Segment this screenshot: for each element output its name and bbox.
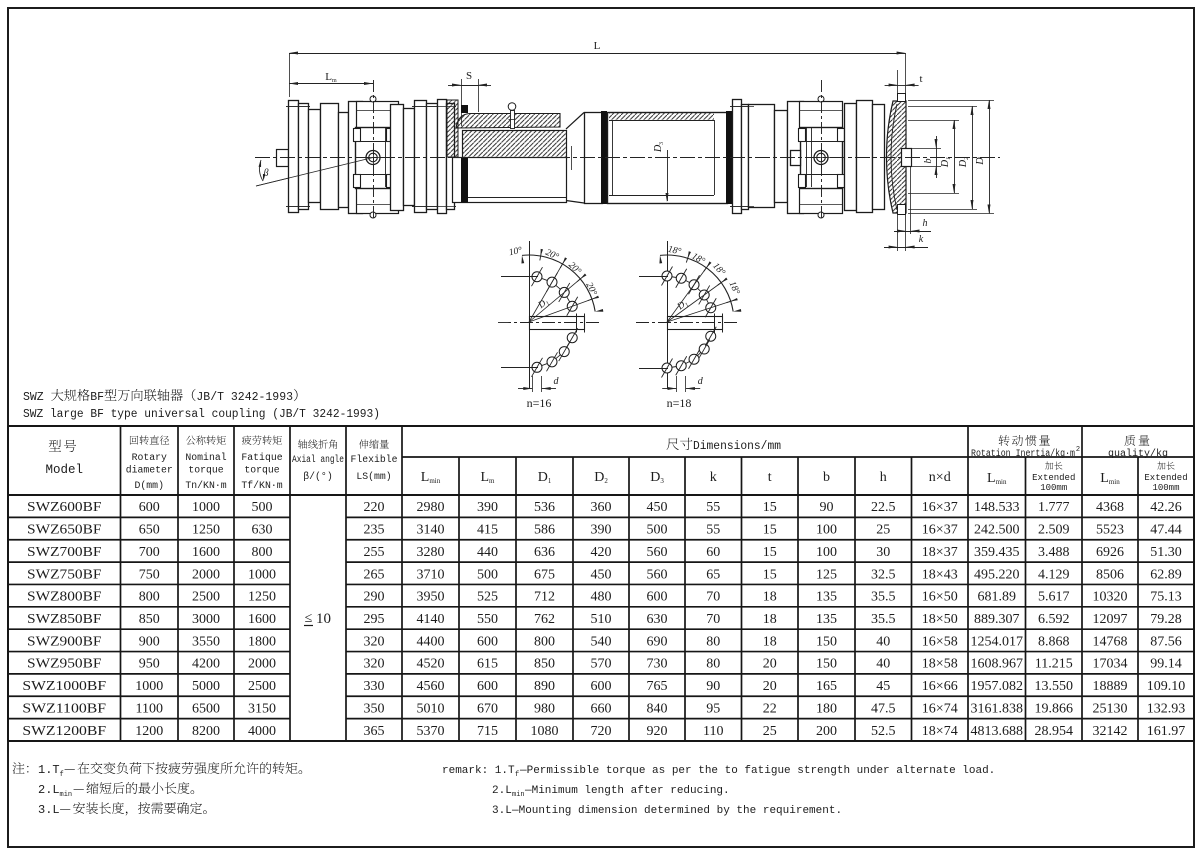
svg-text:1080: 1080 xyxy=(531,724,559,739)
svg-text:500: 500 xyxy=(252,500,273,515)
svg-text:35.5: 35.5 xyxy=(871,590,896,605)
svg-text:18×37: 18×37 xyxy=(922,545,958,560)
svg-text:5523: 5523 xyxy=(1096,523,1124,538)
svg-text:3280: 3280 xyxy=(417,545,445,560)
svg-text:600: 600 xyxy=(139,500,160,515)
svg-text:1.T: 1.T xyxy=(38,763,60,777)
svg-text:320: 320 xyxy=(364,634,385,649)
svg-text:700: 700 xyxy=(139,545,160,560)
svg-text:500: 500 xyxy=(477,567,498,582)
svg-text:47.5: 47.5 xyxy=(871,701,896,716)
svg-text:1.777: 1.777 xyxy=(1038,500,1070,515)
svg-text:100mm: 100mm xyxy=(1152,483,1179,493)
svg-text:16×37: 16×37 xyxy=(922,500,958,515)
svg-text:450: 450 xyxy=(647,500,668,515)
svg-text:D: D xyxy=(975,157,986,166)
svg-text:47.44: 47.44 xyxy=(1150,523,1182,538)
svg-text:3.L: 3.L xyxy=(38,803,60,817)
svg-text:15: 15 xyxy=(763,500,777,515)
svg-text:1608.967: 1608.967 xyxy=(971,657,1024,672)
svg-text:remark: 1.T: remark: 1.T xyxy=(442,765,515,777)
svg-text:70: 70 xyxy=(706,612,720,627)
svg-text:90: 90 xyxy=(706,679,720,694)
svg-text:715: 715 xyxy=(477,724,498,739)
svg-text:480: 480 xyxy=(591,590,612,605)
svg-text:25130: 25130 xyxy=(1093,701,1128,716)
svg-text:525: 525 xyxy=(477,590,498,605)
svg-text:180: 180 xyxy=(816,701,837,716)
svg-text:290: 290 xyxy=(364,590,385,605)
svg-text:600: 600 xyxy=(477,679,498,694)
svg-text:161.97: 161.97 xyxy=(1147,724,1186,739)
svg-text:360: 360 xyxy=(591,500,612,515)
svg-text:min: min xyxy=(512,791,525,799)
svg-text:SWZ1100BF: SWZ1100BF xyxy=(22,701,106,716)
svg-text:600: 600 xyxy=(477,634,498,649)
svg-text:Model: Model xyxy=(45,463,83,477)
svg-text:BF: BF xyxy=(90,391,104,404)
svg-text:b: b xyxy=(923,159,934,164)
svg-text:295: 295 xyxy=(364,612,385,627)
svg-text:800: 800 xyxy=(252,545,273,560)
svg-text:4200: 4200 xyxy=(192,657,220,672)
svg-text:6500: 6500 xyxy=(192,701,220,716)
svg-text:SWZ1000BF: SWZ1000BF xyxy=(22,679,106,694)
svg-text:3: 3 xyxy=(659,142,665,145)
svg-text:800: 800 xyxy=(139,590,160,605)
svg-text:150: 150 xyxy=(816,634,837,649)
svg-text:17034: 17034 xyxy=(1093,657,1128,672)
svg-text:Extended: Extended xyxy=(1144,473,1187,483)
svg-text:18×50: 18×50 xyxy=(922,612,958,627)
svg-text:Dimensions/mm: Dimensions/mm xyxy=(693,439,781,453)
svg-text:n=16: n=16 xyxy=(527,396,552,410)
svg-text:148.533: 148.533 xyxy=(974,500,1020,515)
svg-text:3.L: 3.L xyxy=(492,805,512,817)
svg-text:torque: torque xyxy=(188,465,223,476)
svg-text:660: 660 xyxy=(591,701,612,716)
svg-text:242.500: 242.500 xyxy=(974,523,1020,538)
svg-text:25: 25 xyxy=(876,523,890,538)
svg-text:Flexible: Flexible xyxy=(350,454,397,465)
svg-text:3150: 3150 xyxy=(248,701,276,716)
svg-text:681.89: 681.89 xyxy=(978,590,1017,605)
svg-text:8506: 8506 xyxy=(1096,567,1124,582)
svg-text:62.89: 62.89 xyxy=(1150,567,1182,582)
svg-text:2.509: 2.509 xyxy=(1038,523,1070,538)
svg-text:950: 950 xyxy=(139,657,160,672)
svg-text:n=18: n=18 xyxy=(667,396,692,410)
svg-text:95: 95 xyxy=(706,701,720,716)
svg-text:100mm: 100mm xyxy=(1040,483,1067,493)
svg-text:87.56: 87.56 xyxy=(1150,634,1182,649)
svg-text:615: 615 xyxy=(477,657,498,672)
svg-text:80: 80 xyxy=(706,634,720,649)
svg-text:1250: 1250 xyxy=(248,590,276,605)
svg-text:765: 765 xyxy=(647,679,668,694)
svg-text:630: 630 xyxy=(252,523,273,538)
svg-text:4520: 4520 xyxy=(417,657,445,672)
svg-text:3950: 3950 xyxy=(417,590,445,605)
svg-text:79.28: 79.28 xyxy=(1150,612,1182,627)
svg-text:Tn/KN·m: Tn/KN·m xyxy=(185,480,226,491)
svg-text:3000: 3000 xyxy=(192,612,220,627)
svg-text:4140: 4140 xyxy=(417,612,445,627)
svg-text:390: 390 xyxy=(591,523,612,538)
svg-text:2980: 2980 xyxy=(417,500,445,515)
svg-text:135: 135 xyxy=(816,590,837,605)
svg-text:1000: 1000 xyxy=(192,500,220,515)
svg-text:LS(mm): LS(mm) xyxy=(356,471,391,482)
svg-text:2000: 2000 xyxy=(192,567,220,582)
svg-text:SWZ650BF: SWZ650BF xyxy=(27,523,102,538)
svg-text:1000: 1000 xyxy=(135,679,163,694)
svg-text:1250: 1250 xyxy=(192,523,220,538)
svg-text:42.26: 42.26 xyxy=(1150,500,1182,515)
svg-text:450: 450 xyxy=(591,567,612,582)
svg-text:330: 330 xyxy=(364,679,385,694)
svg-text:560: 560 xyxy=(647,567,668,582)
svg-text:1600: 1600 xyxy=(248,612,276,627)
svg-text:18×58: 18×58 xyxy=(922,657,958,672)
svg-text:536: 536 xyxy=(534,500,555,515)
svg-text:220: 220 xyxy=(364,500,385,515)
svg-text:1200: 1200 xyxy=(135,724,163,739)
svg-text:90: 90 xyxy=(820,500,834,515)
svg-text:99.14: 99.14 xyxy=(1150,657,1182,672)
svg-text:18×74: 18×74 xyxy=(922,724,958,739)
svg-text:SWZ1200BF: SWZ1200BF xyxy=(22,724,106,739)
svg-text:560: 560 xyxy=(647,545,668,560)
svg-text:110: 110 xyxy=(703,724,723,739)
svg-text:18889: 18889 xyxy=(1093,679,1128,694)
svg-text:650: 650 xyxy=(139,523,160,538)
svg-text:265: 265 xyxy=(364,567,385,582)
svg-text:8.868: 8.868 xyxy=(1038,634,1070,649)
svg-text:3550: 3550 xyxy=(192,634,220,649)
svg-text:390: 390 xyxy=(477,500,498,515)
svg-text:5.617: 5.617 xyxy=(1038,590,1070,605)
svg-text:1100: 1100 xyxy=(136,701,163,716)
svg-text:850: 850 xyxy=(534,657,555,672)
svg-text:690: 690 xyxy=(647,634,668,649)
svg-text:45: 45 xyxy=(876,679,890,694)
svg-text:920: 920 xyxy=(647,724,668,739)
svg-text:586: 586 xyxy=(534,523,555,538)
svg-text:20: 20 xyxy=(763,657,777,672)
svg-text:4400: 4400 xyxy=(417,634,445,649)
svg-text:5370: 5370 xyxy=(417,724,445,739)
svg-text:75.13: 75.13 xyxy=(1150,590,1182,605)
svg-text:Nominal: Nominal xyxy=(185,452,226,463)
svg-text:12097: 12097 xyxy=(1093,612,1128,627)
svg-text:SWZ700BF: SWZ700BF xyxy=(27,545,102,560)
svg-text:S: S xyxy=(466,70,472,82)
svg-text:Axial angle: Axial angle xyxy=(292,454,344,465)
svg-text:16×58: 16×58 xyxy=(922,634,958,649)
svg-text:n×d: n×d xyxy=(929,470,951,485)
svg-text:14768: 14768 xyxy=(1093,634,1128,649)
svg-text:55: 55 xyxy=(706,523,720,538)
svg-text:2.L: 2.L xyxy=(38,783,60,797)
svg-text:SWZ950BF: SWZ950BF xyxy=(27,657,102,672)
svg-text:55: 55 xyxy=(706,500,720,515)
svg-text:2: 2 xyxy=(1076,446,1080,454)
svg-text:5010: 5010 xyxy=(417,701,445,716)
svg-text:675: 675 xyxy=(534,567,555,582)
svg-text:570: 570 xyxy=(591,657,612,672)
svg-text:1957.082: 1957.082 xyxy=(971,679,1024,694)
svg-text:125: 125 xyxy=(816,567,837,582)
svg-text:850: 850 xyxy=(139,612,160,627)
svg-text:8200: 8200 xyxy=(192,724,220,739)
svg-text:510: 510 xyxy=(591,612,612,627)
svg-text:4813.688: 4813.688 xyxy=(971,724,1024,739)
svg-text:1254.017: 1254.017 xyxy=(971,634,1024,649)
svg-text:365: 365 xyxy=(364,724,385,739)
svg-text:80: 80 xyxy=(706,657,720,672)
svg-text:35.5: 35.5 xyxy=(871,612,896,627)
svg-text:19.866: 19.866 xyxy=(1035,701,1074,716)
svg-text:840: 840 xyxy=(647,701,668,716)
svg-text:600: 600 xyxy=(647,590,668,605)
svg-text:torque: torque xyxy=(244,465,279,476)
svg-text:b: b xyxy=(823,470,830,485)
svg-text:440: 440 xyxy=(477,545,498,560)
svg-text:32.5: 32.5 xyxy=(871,567,896,582)
svg-text:132.93: 132.93 xyxy=(1147,701,1186,716)
svg-text:SWZ750BF: SWZ750BF xyxy=(27,567,102,582)
svg-text:22: 22 xyxy=(763,701,777,716)
svg-text:200: 200 xyxy=(816,724,837,739)
svg-text:f: f xyxy=(60,771,64,779)
svg-text:4368: 4368 xyxy=(1096,500,1124,515)
svg-text:min: min xyxy=(60,791,73,799)
svg-text:22.5: 22.5 xyxy=(871,500,896,515)
svg-text:165: 165 xyxy=(816,679,837,694)
svg-text:SWZ900BF: SWZ900BF xyxy=(27,634,102,649)
svg-text:762: 762 xyxy=(534,612,555,627)
svg-text:Rotation Inertia/kg·m: Rotation Inertia/kg·m xyxy=(971,448,1075,460)
svg-text:60: 60 xyxy=(706,545,720,560)
svg-text:415: 415 xyxy=(477,523,498,538)
svg-text:25: 25 xyxy=(763,724,777,739)
svg-text:28.954: 28.954 xyxy=(1035,724,1074,739)
svg-text:540: 540 xyxy=(591,634,612,649)
svg-text:—Minimum length after reducing: —Minimum length after reducing. xyxy=(524,785,730,797)
svg-text:51.30: 51.30 xyxy=(1150,545,1182,560)
svg-text:3.488: 3.488 xyxy=(1038,545,1070,560)
svg-text:18: 18 xyxy=(763,590,777,605)
svg-text:6926: 6926 xyxy=(1096,545,1124,560)
svg-text:32142: 32142 xyxy=(1093,724,1128,739)
svg-text:diameter: diameter xyxy=(126,465,173,476)
svg-text:SWZ large BF type universal co: SWZ large BF type universal coupling (JB… xyxy=(23,408,380,421)
svg-text:600: 600 xyxy=(591,679,612,694)
svg-text:712: 712 xyxy=(534,590,555,605)
svg-text:13.550: 13.550 xyxy=(1035,679,1074,694)
svg-text:5000: 5000 xyxy=(192,679,220,694)
svg-text:—Mounting dimension determined: —Mounting dimension determined by the re… xyxy=(511,805,842,817)
svg-text:10320: 10320 xyxy=(1093,590,1128,605)
svg-text:1000: 1000 xyxy=(248,567,276,582)
svg-text:3140: 3140 xyxy=(417,523,445,538)
svg-text:k: k xyxy=(919,234,924,245)
svg-text:Rotary: Rotary xyxy=(132,452,167,463)
svg-text:D(mm): D(mm) xyxy=(135,480,164,491)
svg-text:890: 890 xyxy=(534,679,555,694)
svg-text:4000: 4000 xyxy=(248,724,276,739)
svg-text:h: h xyxy=(923,218,928,229)
svg-text:65: 65 xyxy=(706,567,720,582)
svg-text:f: f xyxy=(515,771,519,779)
svg-text:3710: 3710 xyxy=(417,567,445,582)
svg-text:495.220: 495.220 xyxy=(974,567,1020,582)
svg-text:18×43: 18×43 xyxy=(922,567,958,582)
svg-text:52.5: 52.5 xyxy=(871,724,896,739)
svg-text:15: 15 xyxy=(763,545,777,560)
svg-text:t: t xyxy=(768,470,772,485)
svg-text:16×50: 16×50 xyxy=(922,590,958,605)
svg-text:235: 235 xyxy=(364,523,385,538)
svg-text:SWZ600BF: SWZ600BF xyxy=(27,500,102,515)
svg-text:k: k xyxy=(710,470,717,485)
svg-text:720: 720 xyxy=(591,724,612,739)
svg-text:SWZ850BF: SWZ850BF xyxy=(27,612,102,627)
svg-text:18: 18 xyxy=(763,612,777,627)
svg-text:h: h xyxy=(880,470,887,485)
svg-text:670: 670 xyxy=(477,701,498,716)
svg-text:70: 70 xyxy=(706,590,720,605)
svg-text:100: 100 xyxy=(816,545,837,560)
svg-text:SWZ800BF: SWZ800BF xyxy=(27,590,102,605)
svg-text:150: 150 xyxy=(816,657,837,672)
svg-text:420: 420 xyxy=(591,545,612,560)
svg-text:730: 730 xyxy=(647,657,668,672)
svg-text:quality/kg: quality/kg xyxy=(1108,448,1168,460)
svg-text:15: 15 xyxy=(763,567,777,582)
svg-text:889.307: 889.307 xyxy=(974,612,1020,627)
svg-text:4.129: 4.129 xyxy=(1038,567,1070,582)
svg-text:JB/T 3242-1993: JB/T 3242-1993 xyxy=(196,391,293,404)
svg-text:359.435: 359.435 xyxy=(974,545,1020,560)
svg-text:550: 550 xyxy=(477,612,498,627)
svg-text:—Permissible torque as per the: —Permissible torque as per the to fatigu… xyxy=(519,765,995,777)
svg-text:750: 750 xyxy=(139,567,160,582)
svg-text:t: t xyxy=(919,73,922,85)
svg-text:L: L xyxy=(594,40,601,52)
svg-text:40: 40 xyxy=(876,634,890,649)
svg-text:320: 320 xyxy=(364,657,385,672)
svg-text:2000: 2000 xyxy=(248,657,276,672)
svg-text:20: 20 xyxy=(763,679,777,694)
svg-text:15: 15 xyxy=(763,523,777,538)
svg-text:10: 10 xyxy=(316,611,331,627)
svg-text:980: 980 xyxy=(534,701,555,716)
svg-text:900: 900 xyxy=(139,634,160,649)
svg-text:6.592: 6.592 xyxy=(1038,612,1070,627)
svg-text:2.L: 2.L xyxy=(492,785,512,797)
svg-text:Tf/KN·m: Tf/KN·m xyxy=(241,480,282,491)
svg-text:Fatique: Fatique xyxy=(241,452,282,463)
svg-text:800: 800 xyxy=(534,634,555,649)
svg-text:255: 255 xyxy=(364,545,385,560)
svg-text:2500: 2500 xyxy=(248,679,276,694)
svg-text:630: 630 xyxy=(647,612,668,627)
svg-text:109.10: 109.10 xyxy=(1147,679,1186,694)
svg-text:11.215: 11.215 xyxy=(1035,657,1073,672)
svg-text:100: 100 xyxy=(816,523,837,538)
svg-text:16×37: 16×37 xyxy=(922,523,958,538)
svg-text:4560: 4560 xyxy=(417,679,445,694)
svg-text:16×66: 16×66 xyxy=(922,679,958,694)
svg-text:1800: 1800 xyxy=(248,634,276,649)
svg-text:≤: ≤ xyxy=(305,611,313,626)
svg-text:40: 40 xyxy=(876,657,890,672)
svg-text:1600: 1600 xyxy=(192,545,220,560)
svg-text:Extended: Extended xyxy=(1032,473,1075,483)
svg-text:135: 135 xyxy=(816,612,837,627)
svg-text:2500: 2500 xyxy=(192,590,220,605)
svg-text:SWZ: SWZ xyxy=(23,391,51,404)
svg-text:3161.838: 3161.838 xyxy=(971,701,1024,716)
svg-text:β: β xyxy=(263,168,269,179)
svg-text:16×74: 16×74 xyxy=(922,701,958,716)
svg-text:350: 350 xyxy=(364,701,385,716)
svg-text:18: 18 xyxy=(763,634,777,649)
svg-text:30: 30 xyxy=(876,545,890,560)
svg-text:636: 636 xyxy=(534,545,555,560)
svg-text:β/(°): β/(°) xyxy=(303,471,332,482)
svg-text:500: 500 xyxy=(647,523,668,538)
